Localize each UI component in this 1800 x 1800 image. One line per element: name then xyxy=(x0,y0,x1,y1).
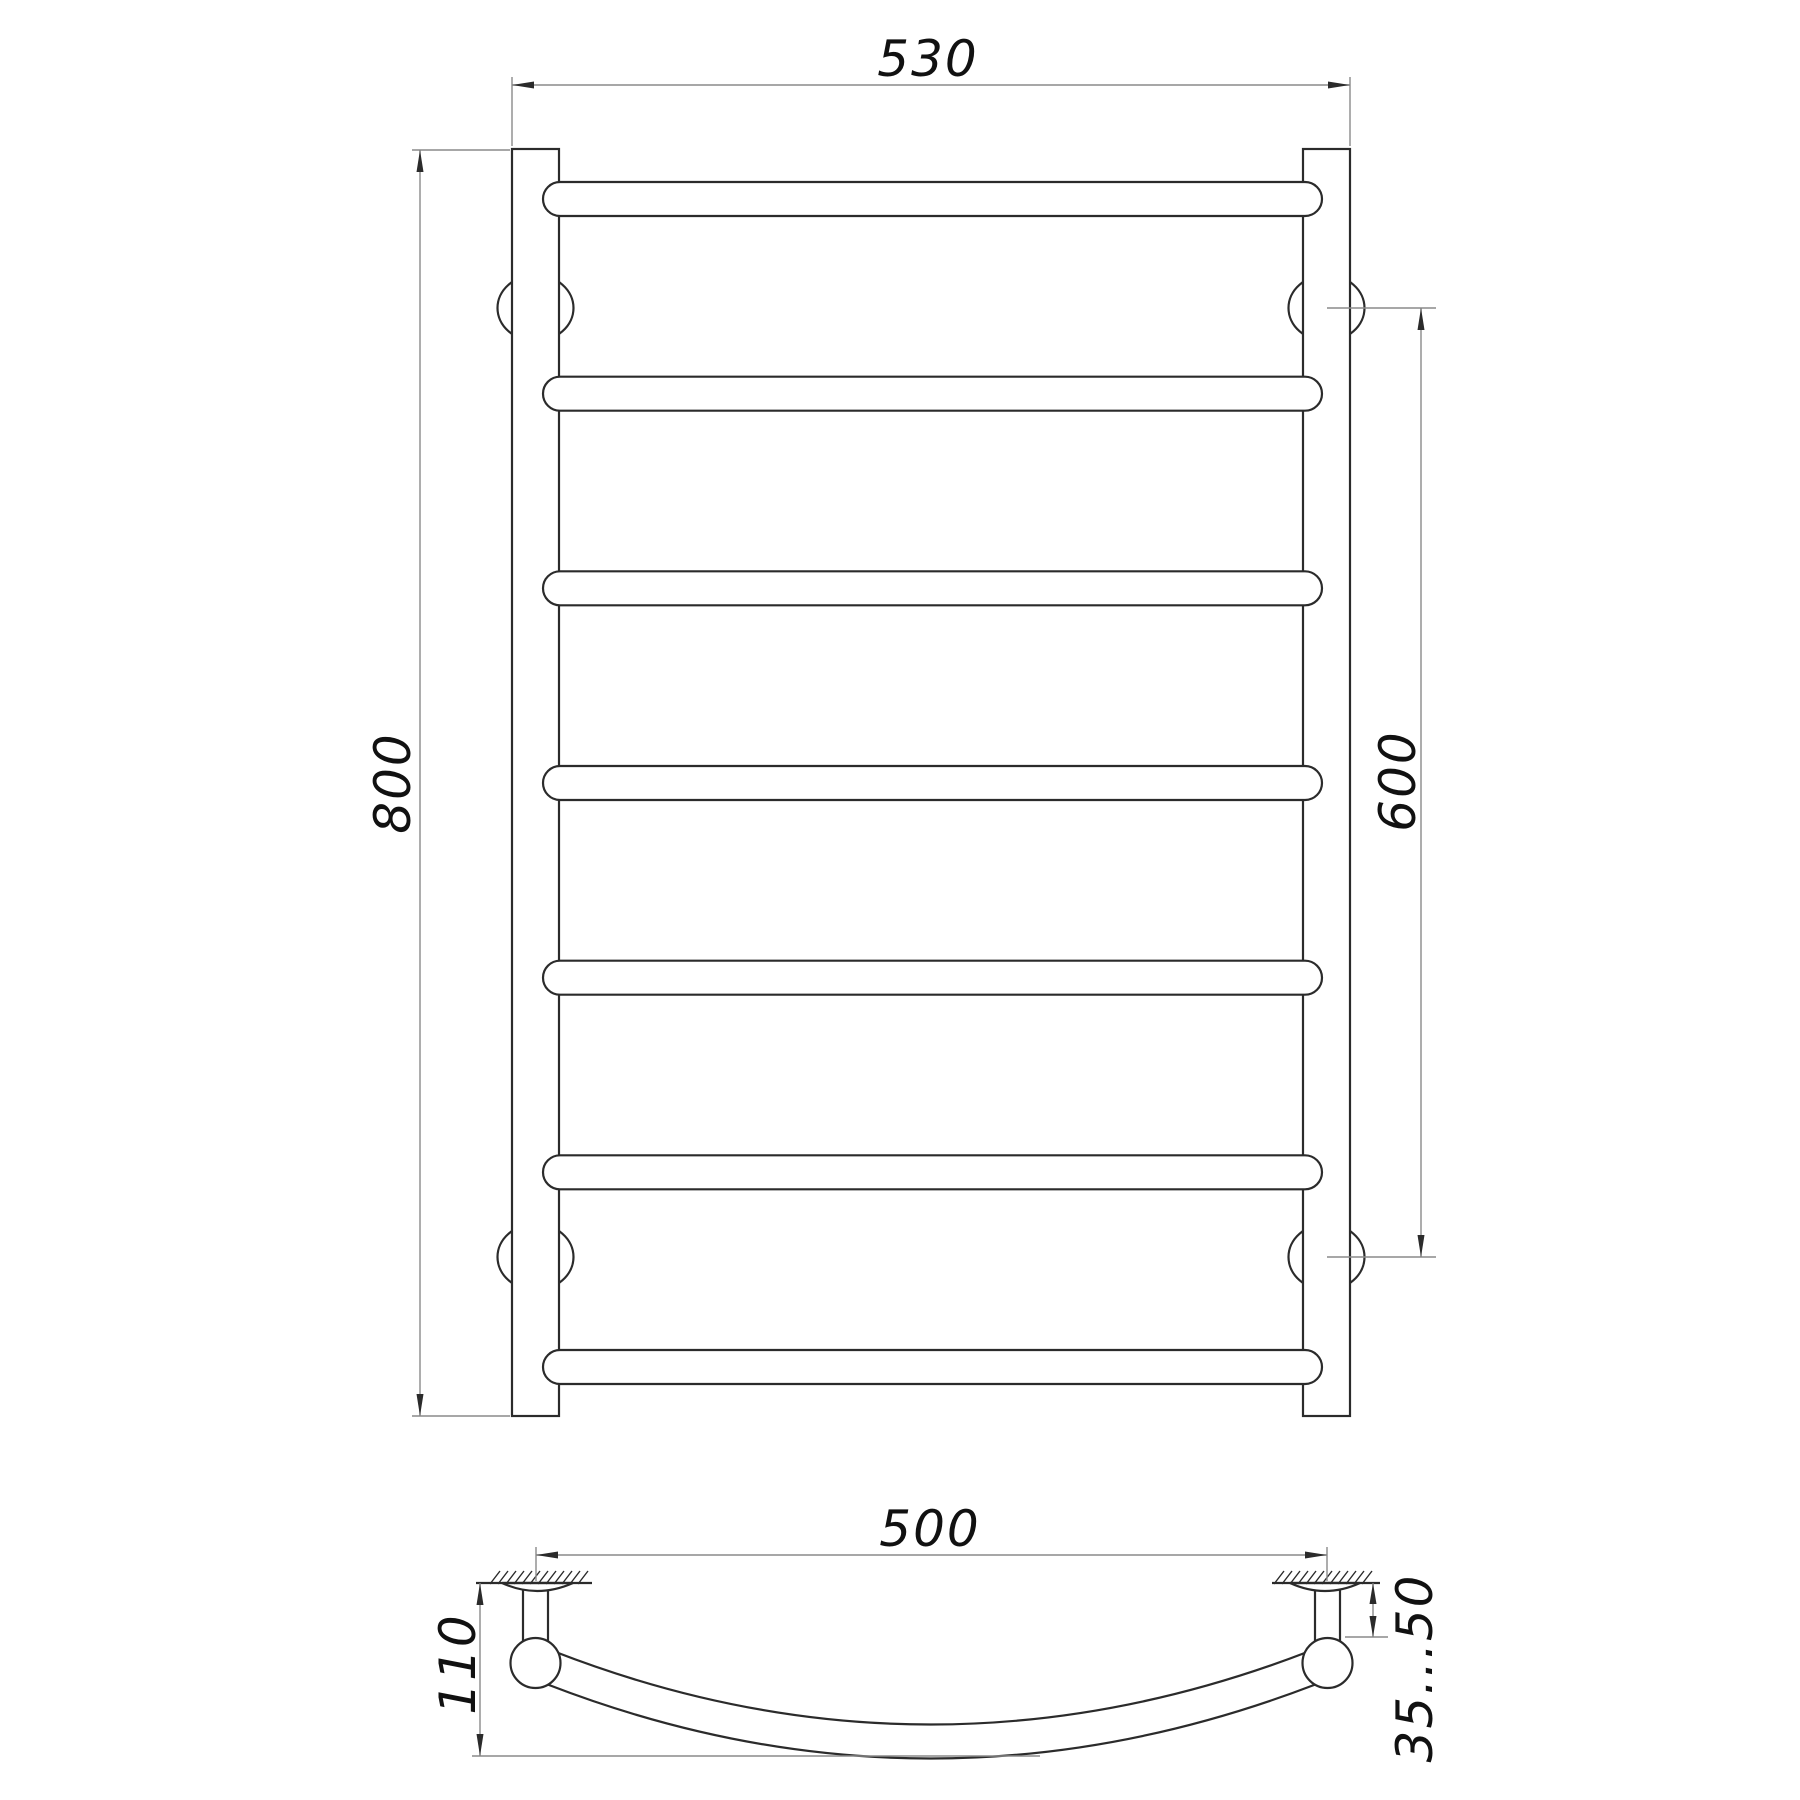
dim-label-mounting-distance: 600 xyxy=(1369,730,1427,831)
front-view xyxy=(498,149,1365,1416)
dim-label-overall-height: 800 xyxy=(364,732,422,833)
profile-view xyxy=(476,1571,1380,1759)
technical-drawing-page: 530 800 600 xyxy=(0,0,1800,1800)
dimension-bar-width: 500 xyxy=(536,1500,1327,1581)
dim-label-wall-clearance: 35...50 xyxy=(1386,1574,1444,1763)
dimension-overall-height: 800 xyxy=(364,150,510,1416)
rung xyxy=(543,377,1322,411)
dim-label-overall-width: 530 xyxy=(877,30,978,88)
wall-flange-right xyxy=(1290,1583,1360,1591)
rung xyxy=(543,1350,1322,1384)
rung xyxy=(543,766,1322,800)
towel-rail-technical-drawing: 530 800 600 xyxy=(0,0,1800,1800)
dim-label-depth: 110 xyxy=(429,1613,487,1714)
rung xyxy=(543,1155,1322,1189)
dim-label-bar-width: 500 xyxy=(879,1500,980,1558)
dimension-wall-clearance: 35...50 xyxy=(1345,1574,1444,1763)
rung xyxy=(543,182,1322,216)
dimension-overall-width: 530 xyxy=(512,30,1350,146)
bracket-ball-right xyxy=(1303,1638,1353,1688)
rung xyxy=(543,571,1322,605)
towel-bar-arc xyxy=(549,1651,1314,1759)
bracket-ball-left xyxy=(511,1638,561,1688)
rung xyxy=(543,961,1322,995)
